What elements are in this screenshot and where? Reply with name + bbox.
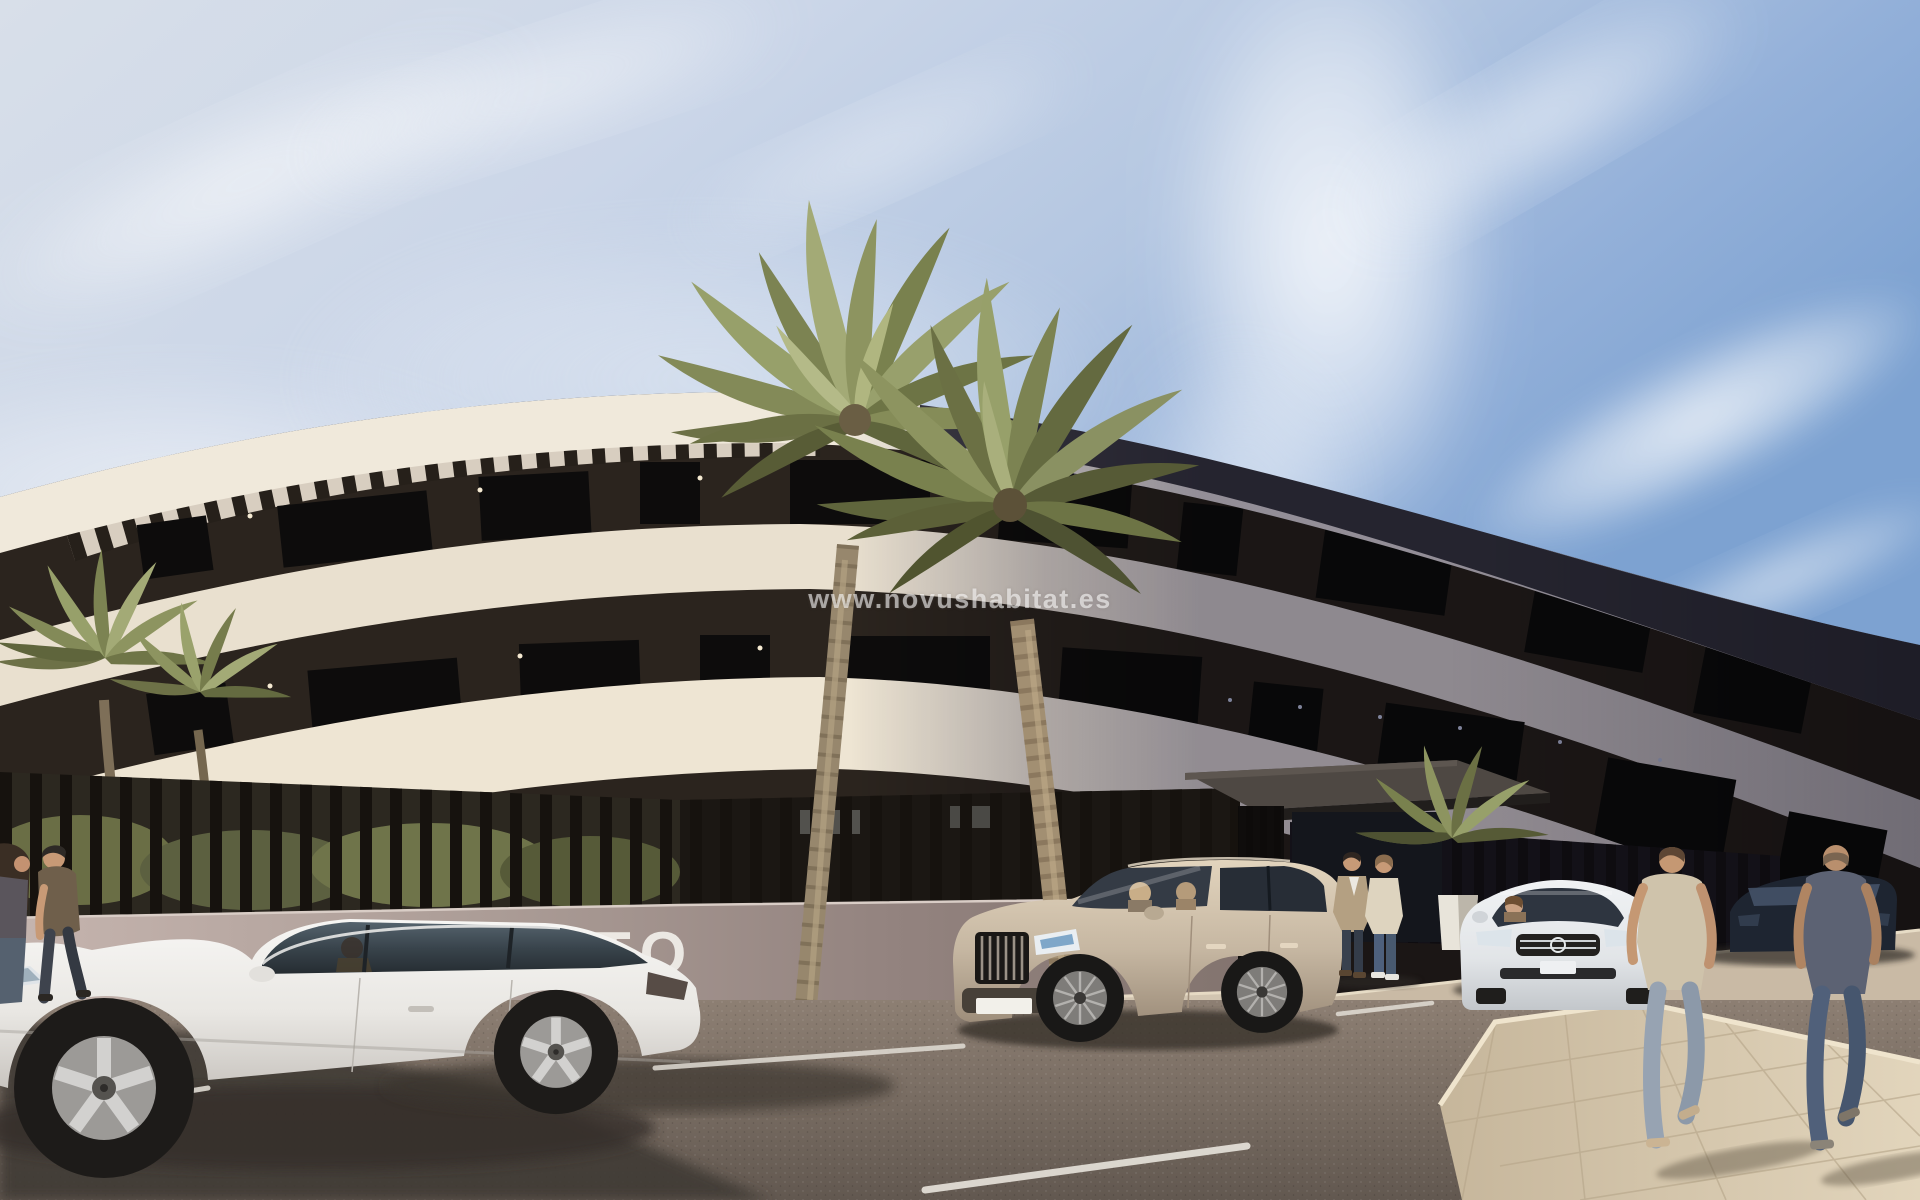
door-handle	[1280, 943, 1298, 948]
wheel	[1476, 988, 1506, 1004]
side-mirror	[249, 966, 275, 982]
front-wheel	[1036, 954, 1124, 1042]
headlight	[1476, 929, 1512, 947]
door-handle	[1206, 944, 1226, 949]
rendered-photo: TO	[0, 0, 1920, 1200]
license-plate	[1540, 961, 1576, 974]
front-wheel	[14, 998, 194, 1178]
door-handle	[408, 1006, 434, 1012]
side-mirror	[1472, 911, 1488, 923]
side-mirror	[1144, 906, 1164, 920]
rear-wheel	[1221, 951, 1303, 1033]
license-plate	[976, 998, 1032, 1014]
rear-wheel	[494, 990, 618, 1114]
